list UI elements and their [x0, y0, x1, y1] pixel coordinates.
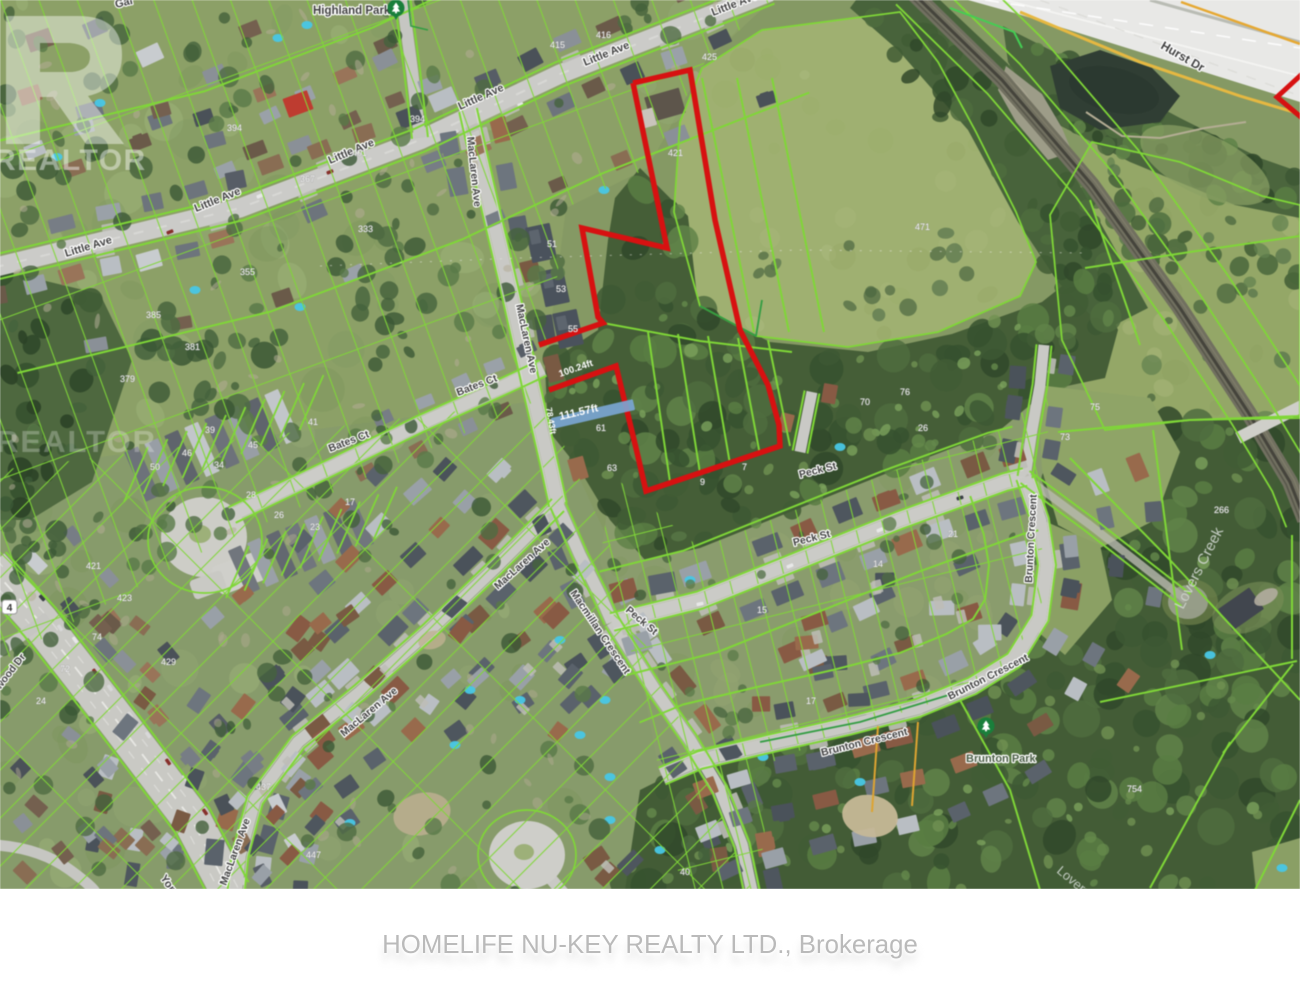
- svg-text:367: 367: [300, 174, 315, 184]
- svg-text:21: 21: [948, 529, 958, 539]
- svg-text:23: 23: [310, 522, 320, 532]
- svg-text:379: 379: [120, 374, 135, 384]
- svg-text:74: 74: [92, 632, 102, 642]
- svg-text:333: 333: [358, 224, 373, 234]
- svg-text:9: 9: [700, 477, 705, 487]
- svg-text:416: 416: [596, 30, 611, 40]
- svg-text:REALTOR: REALTOR: [0, 424, 157, 459]
- svg-text:40: 40: [680, 867, 690, 877]
- svg-text:61: 61: [596, 423, 606, 433]
- svg-text:55: 55: [568, 324, 578, 334]
- svg-text:26: 26: [274, 510, 284, 520]
- svg-text:45: 45: [248, 440, 258, 450]
- svg-text:425: 425: [702, 52, 717, 62]
- svg-text:754: 754: [1127, 784, 1142, 794]
- svg-text:394: 394: [227, 123, 242, 133]
- svg-text:53: 53: [556, 284, 566, 294]
- svg-text:415: 415: [550, 40, 565, 50]
- svg-text:421: 421: [668, 148, 683, 158]
- svg-text:70: 70: [860, 397, 870, 407]
- svg-text:266: 266: [1214, 505, 1229, 515]
- svg-text:14: 14: [873, 559, 883, 569]
- svg-text:15: 15: [757, 605, 767, 615]
- svg-text:51: 51: [547, 239, 557, 249]
- svg-text:72: 72: [60, 664, 70, 674]
- svg-text:73: 73: [1060, 432, 1070, 442]
- svg-text:423: 423: [117, 593, 132, 603]
- svg-text:39: 39: [205, 425, 215, 435]
- svg-text:4: 4: [7, 603, 13, 614]
- svg-text:381: 381: [185, 342, 200, 352]
- svg-text:63: 63: [607, 463, 617, 473]
- svg-text:437: 437: [256, 782, 271, 792]
- svg-text:394: 394: [410, 114, 425, 124]
- svg-text:Brunton Park: Brunton Park: [966, 753, 1037, 765]
- svg-text:34: 34: [214, 460, 224, 470]
- svg-text:7: 7: [742, 462, 747, 472]
- svg-text:17: 17: [806, 696, 816, 706]
- svg-text:46: 46: [182, 448, 192, 458]
- svg-text:REALTOR: REALTOR: [0, 144, 147, 177]
- svg-text:421: 421: [86, 561, 101, 571]
- svg-text:24: 24: [36, 696, 46, 706]
- svg-text:471: 471: [915, 222, 930, 232]
- svg-text:447: 447: [306, 850, 321, 860]
- svg-text:17: 17: [345, 497, 355, 507]
- svg-text:Highland Park: Highland Park: [313, 5, 391, 17]
- svg-text:401: 401: [352, 148, 367, 158]
- svg-text:355: 355: [240, 267, 255, 277]
- svg-text:75: 75: [1090, 402, 1100, 412]
- svg-text:429: 429: [161, 657, 176, 667]
- svg-text:76: 76: [900, 387, 910, 397]
- svg-text:385: 385: [146, 310, 161, 320]
- svg-text:28: 28: [246, 490, 256, 500]
- svg-text:50: 50: [150, 462, 160, 472]
- svg-text:26: 26: [918, 423, 928, 433]
- svg-text:41: 41: [308, 417, 318, 427]
